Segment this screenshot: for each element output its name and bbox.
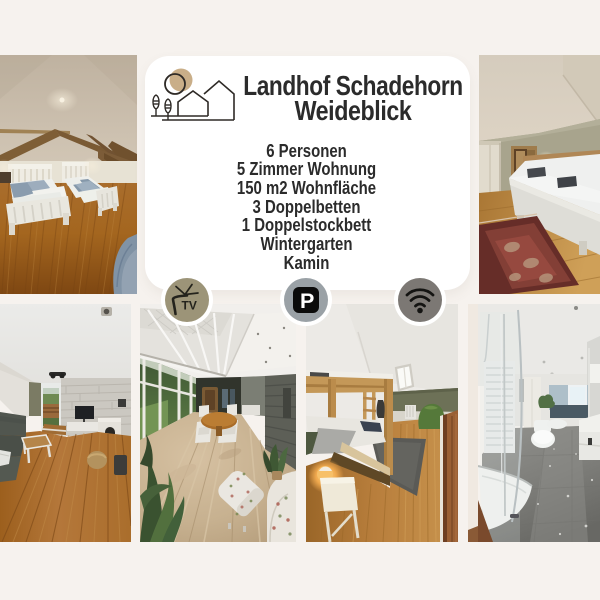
svg-text:P: P <box>300 289 314 313</box>
svg-text:TV: TV <box>182 299 197 313</box>
